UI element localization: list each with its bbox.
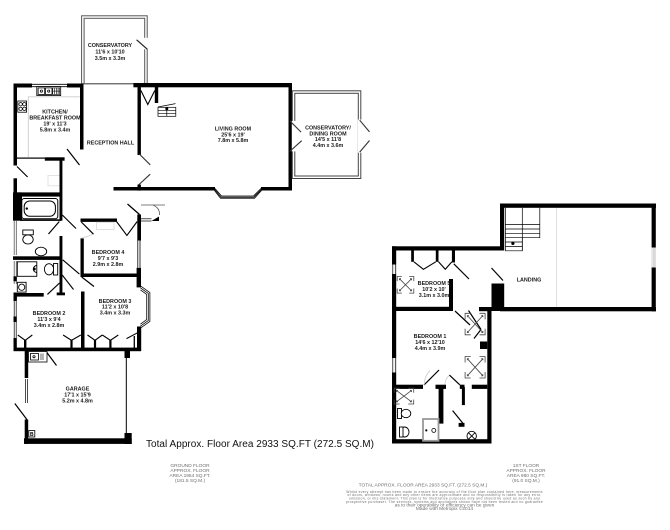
- svg-text:GROUND FLOOR: GROUND FLOOR: [170, 463, 210, 469]
- svg-text:AREA 980 SQ.FT.: AREA 980 SQ.FT.: [507, 473, 545, 479]
- svg-text:APPROX. FLOOR: APPROX. FLOOR: [170, 468, 210, 474]
- svg-text:Made with Metropix ©2014: Made with Metropix ©2014: [416, 505, 473, 512]
- svg-text:AREA 1954 SQ.FT.: AREA 1954 SQ.FT.: [169, 473, 210, 479]
- svg-text:4.4m x 3.9m: 4.4m x 3.9m: [415, 346, 446, 352]
- svg-text:(91.0 SQ.M.): (91.0 SQ.M.): [512, 478, 540, 484]
- svg-text:3.1m x 3.0m: 3.1m x 3.0m: [419, 293, 450, 299]
- svg-text:4.4m x 3.6m: 4.4m x 3.6m: [313, 143, 344, 149]
- svg-text:3.4m x 2.8m: 3.4m x 2.8m: [34, 323, 65, 329]
- svg-text:TOTAL APPROX. FLOOR AREA 2933: TOTAL APPROX. FLOOR AREA 2933 SQ.FT. (27…: [359, 483, 488, 489]
- svg-text:5.8m x 3.4m: 5.8m x 3.4m: [40, 128, 71, 134]
- svg-text:3.4m x 3.3m: 3.4m x 3.3m: [100, 310, 131, 316]
- svg-text:CONSERVATORY: CONSERVATORY: [88, 43, 133, 49]
- svg-text:Total Approx. Floor Area 2933: Total Approx. Floor Area 2933 SQ.FT (272…: [146, 439, 374, 450]
- svg-text:B: B: [30, 432, 34, 438]
- svg-text:LANDING: LANDING: [517, 278, 542, 284]
- svg-text:11'6 x 10'10: 11'6 x 10'10: [95, 50, 124, 56]
- svg-text:APPROX. FLOOR: APPROX. FLOOR: [506, 468, 546, 474]
- svg-text:5.2m x 4.8m: 5.2m x 4.8m: [62, 399, 93, 405]
- svg-text:RECEPTION HALL: RECEPTION HALL: [87, 141, 135, 147]
- svg-text:3.5m x 3.3m: 3.5m x 3.3m: [95, 56, 126, 62]
- svg-text:7.8m x 5.8m: 7.8m x 5.8m: [218, 138, 249, 144]
- svg-text:(181.5 SQ.M.): (181.5 SQ.M.): [175, 478, 206, 484]
- svg-text:1ST FLOOR: 1ST FLOOR: [513, 463, 540, 469]
- svg-text:2.9m x 2.8m: 2.9m x 2.8m: [93, 262, 124, 268]
